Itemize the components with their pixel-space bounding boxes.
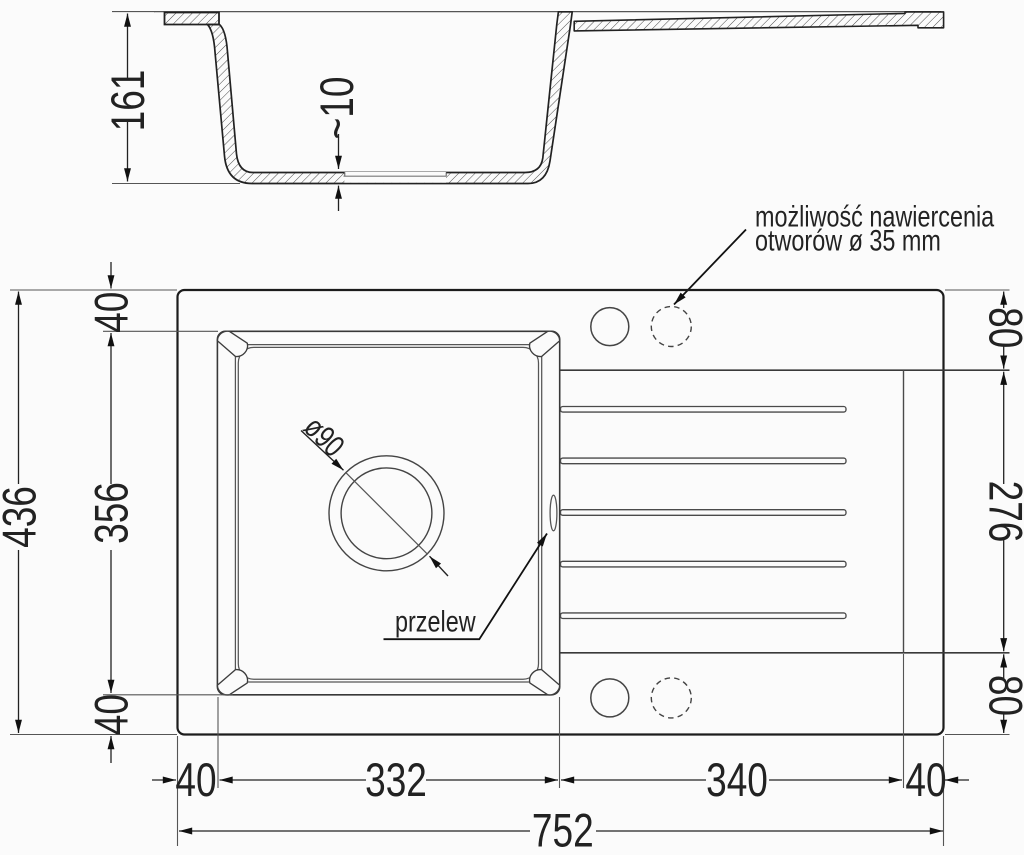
svg-text:436: 436: [0, 486, 47, 548]
svg-text:752: 752: [532, 804, 594, 855]
svg-text:332: 332: [365, 754, 427, 808]
svg-text:przelew: przelew: [395, 605, 476, 638]
svg-text:ø90: ø90: [297, 409, 351, 463]
svg-text:otworów ø 35 mm: otworów ø 35 mm: [755, 224, 941, 257]
svg-text:40: 40: [905, 754, 946, 808]
svg-text:356: 356: [85, 482, 139, 544]
svg-text:161: 161: [102, 70, 156, 132]
svg-text:40: 40: [175, 754, 216, 808]
svg-text:276: 276: [979, 481, 1024, 543]
svg-text:40: 40: [85, 292, 139, 333]
svg-text:40: 40: [85, 694, 139, 735]
svg-text:80: 80: [979, 307, 1024, 348]
svg-text:340: 340: [706, 754, 768, 808]
svg-text:80: 80: [979, 675, 1024, 716]
svg-text:~10: ~10: [311, 77, 365, 140]
